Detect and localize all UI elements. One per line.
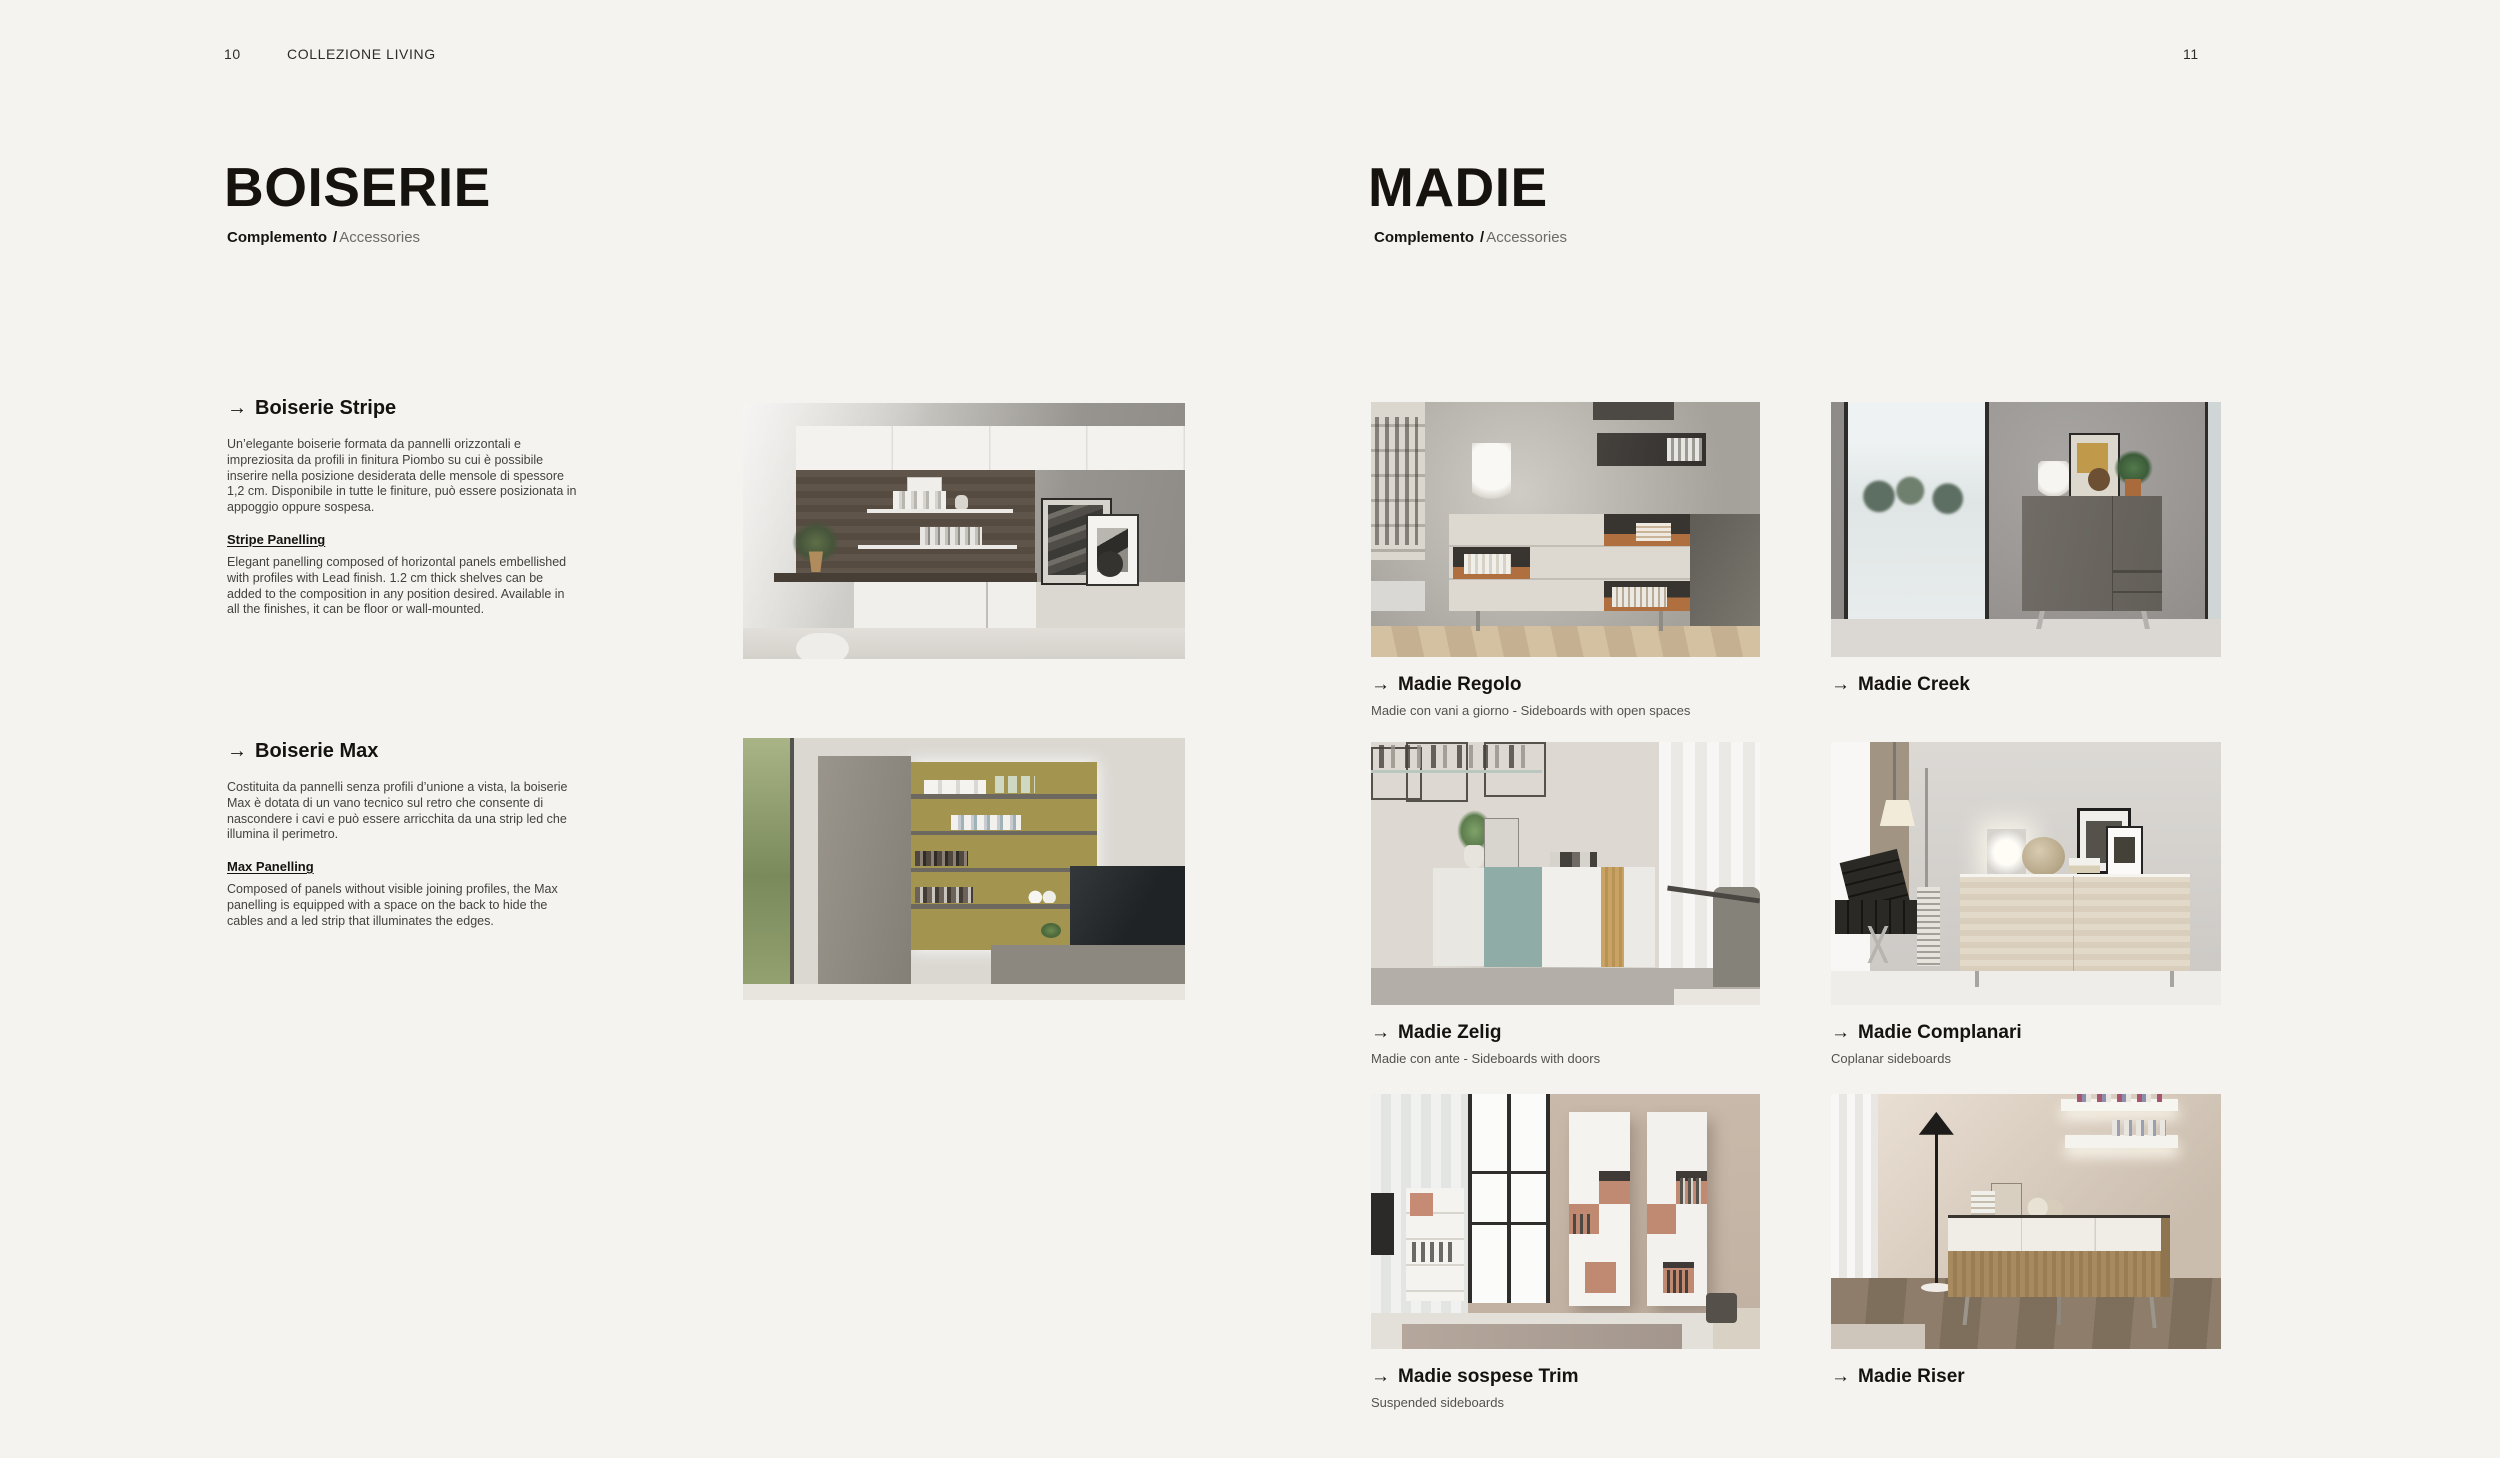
madie-title: MADIE: [1368, 160, 1548, 215]
product-name: Madie sospese Trim: [1398, 1366, 1579, 1388]
column-a-niche-3: [1585, 1262, 1616, 1293]
page-number-left: 10: [224, 46, 241, 62]
madie-riser-link[interactable]: → Madie Riser: [1831, 1366, 2221, 1388]
boiserie-title: BOISERIE: [224, 160, 491, 215]
shelf-4: [911, 904, 1097, 908]
window-greenery: [743, 738, 792, 990]
panel-shelf-lower: [858, 545, 1017, 549]
madie-riser-card: → Madie Riser: [1831, 1094, 2221, 1395]
catalog-spread: 10 COLLEZIONE LIVING 11 BOISERIE Complem…: [0, 0, 2500, 1458]
header-title: COLLEZIONE LIVING: [287, 46, 436, 62]
arrow-right-icon: →: [1831, 1366, 1850, 1388]
sideboard-upper-drawers: [1948, 1218, 2170, 1251]
lamp-cord: [1893, 742, 1895, 805]
books-lower: [920, 527, 982, 545]
balloon-lamp: [1472, 443, 1511, 504]
product-description: Madie con ante - Sideboards with doors: [1371, 1051, 1760, 1066]
small-plant-pot: [1046, 936, 1057, 945]
vase: [955, 495, 968, 509]
product-name: Madie Regolo: [1398, 674, 1522, 696]
shelf-books: [1379, 745, 1527, 769]
base-cabinets: [854, 582, 1186, 628]
rug: [1371, 581, 1425, 612]
product-name: Madie Complanari: [1858, 1022, 2022, 1044]
shelf-lower-books: [2112, 1120, 2167, 1137]
madie-complanari-card: → Madie Complanari Coplanar sideboards: [1831, 742, 2221, 1066]
column-a-niche-1: [1599, 1171, 1630, 1204]
upper-cabinets: [796, 426, 1185, 470]
shelf-items-boxes: [924, 780, 986, 794]
product-description: Madie con vani a giorno - Sideboards wit…: [1371, 703, 1760, 718]
madie-regolo-card: → Madie Regolo Madie con vani a giorno -…: [1371, 402, 1760, 718]
product-name: Madie Riser: [1858, 1366, 1965, 1388]
window-frame-right: [1985, 402, 1989, 621]
column-b-niche-2: [1647, 1204, 1676, 1235]
wall-box-upper: [1593, 402, 1675, 420]
sideboard-lower-doors: [1948, 1251, 2170, 1297]
floor: [743, 984, 1185, 1000]
boiserie-stripe-title: Boiserie Stripe: [255, 397, 396, 420]
niche-books-3: [1612, 587, 1666, 607]
window-mullion-h1: [1468, 1171, 1550, 1175]
madie-creek-photo: [1831, 402, 2221, 657]
subtitle-primary: Complemento: [227, 229, 327, 246]
madie-complanari-link[interactable]: → Madie Complanari: [1831, 1022, 2221, 1044]
frame-small-photo: [2114, 837, 2135, 863]
subtitle-separator: /: [333, 229, 337, 246]
sideboard: [1960, 876, 2190, 971]
window-mullion-v: [1507, 1094, 1511, 1303]
floor: [1831, 971, 2221, 1005]
product-name: Madie Creek: [1858, 674, 1970, 696]
boiserie-stripe-photo: [743, 403, 1185, 659]
shelf-3: [911, 868, 1097, 872]
column-b-books-3: [1667, 1270, 1690, 1293]
sideboard-leg-2: [2057, 1297, 2061, 1325]
page-number-right: 11: [2183, 46, 2199, 62]
subtitle-secondary: Accessories: [339, 229, 420, 246]
sideboard-door-seam: [2112, 496, 2114, 611]
window-frame: [790, 738, 794, 990]
madie-zelig-link[interactable]: → Madie Zelig: [1371, 1022, 1760, 1044]
rug: [1402, 1324, 1682, 1350]
arrow-right-icon: →: [1831, 674, 1850, 696]
sideboard-side-panel: [2161, 1218, 2171, 1297]
deco-frame: [1991, 1183, 2022, 1219]
shelf-2: [911, 831, 1097, 835]
tall-cabinet: [818, 756, 911, 989]
product-name: Madie Zelig: [1398, 1022, 1501, 1044]
panel-shelf-upper: [867, 509, 1013, 513]
madie-trim-photo: [1371, 1094, 1760, 1349]
rug: [1674, 989, 1760, 1005]
window-mullion-h2: [1468, 1222, 1550, 1226]
sofa-cushion: [1706, 1293, 1737, 1324]
floor: [1831, 619, 2221, 657]
dark-sphere-deco: [2088, 468, 2109, 491]
window-right-sliver: [2205, 402, 2221, 621]
side-table: [796, 633, 849, 659]
boiserie-subtitle: Complemento/Accessories: [227, 229, 420, 246]
boiserie-max-body-en: Composed of panels without visible joini…: [227, 882, 567, 929]
bookshelf-books: [1375, 417, 1418, 545]
books-upper: [893, 491, 946, 509]
subtitle-separator: /: [1480, 229, 1484, 246]
sideboard-leg-right: [1659, 611, 1663, 631]
curtain: [1831, 1094, 1878, 1283]
madie-trim-card: → Madie sospese Trim Suspended sideboard…: [1371, 1094, 1760, 1410]
sideboard-side-shadow: [1690, 514, 1760, 631]
sideboard-drawer-seam-1: [2112, 570, 2163, 573]
white-vase-lamp: [2038, 461, 2069, 497]
shelf-upper-books: [2077, 1094, 2163, 1102]
boiserie-stripe-body-it: Un’elegante boiserie formata da pannelli…: [227, 437, 579, 516]
arrow-right-icon: →: [1831, 1022, 1850, 1044]
boiserie-stripe-block: → Boiserie Stripe Un’elegante boiserie f…: [227, 397, 585, 618]
sideboard-leg-left: [1476, 611, 1480, 631]
sideboard: [2022, 496, 2162, 611]
door-wood-strip: [1601, 867, 1624, 967]
madie-riser-photo: [1831, 1094, 2221, 1349]
shelf-1: [911, 794, 1097, 798]
tv: [1070, 866, 1185, 945]
madie-complanari-photo: [1831, 742, 2221, 1005]
madie-creek-card: → Madie Creek: [1831, 402, 2221, 703]
chair-legs: [1839, 926, 1917, 963]
sideboard-leg-right: [2170, 971, 2174, 987]
shelf-unit-books: [1412, 1242, 1455, 1262]
glass-shelf: [1371, 770, 1542, 773]
madie-zelig-photo: [1371, 742, 1760, 1005]
floor-lamp-pole: [1935, 1120, 1938, 1288]
sideboard-top-edge: [1960, 874, 2190, 877]
boiserie-stripe-heading[interactable]: → Boiserie Stripe: [227, 397, 585, 420]
madie-creek-link[interactable]: → Madie Creek: [1831, 674, 2221, 696]
window-frame-left: [1844, 402, 1848, 621]
door-teal: [1484, 867, 1542, 967]
sideboard-drawer-seam-2: [2112, 591, 2163, 594]
boiserie-max-block: → Boiserie Max Costituita da pannelli se…: [227, 740, 585, 930]
shelf-items-mixed: [915, 887, 972, 903]
lit-shelf-lower: [2065, 1135, 2178, 1148]
shelf-unit-niche: [1410, 1193, 1433, 1216]
sideboard-side-panel: [1433, 868, 1484, 965]
sideboard-door-seam: [2073, 876, 2075, 971]
winter-trees: [1854, 428, 1979, 543]
madie-regolo-link[interactable]: → Madie Regolo: [1371, 674, 1760, 696]
boiserie-max-title: Boiserie Max: [255, 740, 378, 763]
plant-vase: [1464, 845, 1483, 869]
shelf-items-vases: [1026, 889, 1057, 903]
subtitle-primary: Complemento: [1374, 229, 1474, 246]
subtitle-secondary: Accessories: [1486, 229, 1567, 246]
shelf-items-houses: [995, 776, 1035, 793]
arrow-right-icon: →: [227, 740, 247, 763]
frame-on-top: [1484, 818, 1519, 868]
column-b-books-1: [1680, 1178, 1703, 1204]
product-description: Coplanar sideboards: [1831, 1051, 2221, 1066]
dark-sphere: [1097, 551, 1124, 577]
boiserie-max-heading[interactable]: → Boiserie Max: [227, 740, 585, 763]
shelf-items-books-white: [951, 815, 1022, 829]
arrow-right-icon: →: [1371, 1366, 1390, 1388]
madie-trim-link[interactable]: → Madie sospese Trim: [1371, 1366, 1760, 1388]
base-unit: [991, 945, 1185, 984]
small-deco-boxes: [1550, 852, 1597, 868]
floor: [1371, 626, 1760, 657]
arrow-right-icon: →: [1371, 674, 1390, 696]
door-white: [1542, 867, 1600, 967]
rug: [1831, 1324, 1925, 1350]
plant-pot: [2125, 479, 2141, 497]
shelf-items-books-dark: [915, 851, 968, 867]
madie-regolo-photo: [1371, 402, 1760, 657]
niche-books-2: [1464, 554, 1511, 574]
magazine-stack: [1917, 887, 1940, 966]
wall-box-books: [1667, 438, 1702, 461]
tv: [1371, 1193, 1394, 1254]
arrow-right-icon: →: [1371, 1022, 1390, 1044]
sideboard-leg-left: [1975, 971, 1979, 987]
worktop: [774, 573, 1037, 582]
madie-zelig-card: → Madie Zelig Madie con ante - Sideboard…: [1371, 742, 1760, 1066]
madie-subtitle: Complemento/Accessories: [1374, 229, 1567, 246]
boiserie-stripe-body-en: Elegant panelling composed of horizontal…: [227, 555, 567, 618]
column-a-books: [1573, 1214, 1592, 1234]
boiserie-max-photo: [743, 738, 1185, 1000]
deco-sphere: [2022, 837, 2065, 876]
glow-lamp: [1987, 829, 2026, 876]
niche-books-1: [1636, 523, 1671, 541]
deco-boxes: [2069, 858, 2100, 874]
stripe-panelling-subheading: Stripe Panelling: [227, 532, 585, 547]
base-cabinet-seam: [986, 582, 988, 628]
max-panelling-subheading: Max Panelling: [227, 859, 585, 874]
product-description: Suspended sideboards: [1371, 1395, 1760, 1410]
door-white-right: [1624, 867, 1655, 967]
boiserie-max-body-it: Costituita da pannelli senza profili d’u…: [227, 780, 579, 843]
arrow-right-icon: →: [227, 397, 247, 420]
